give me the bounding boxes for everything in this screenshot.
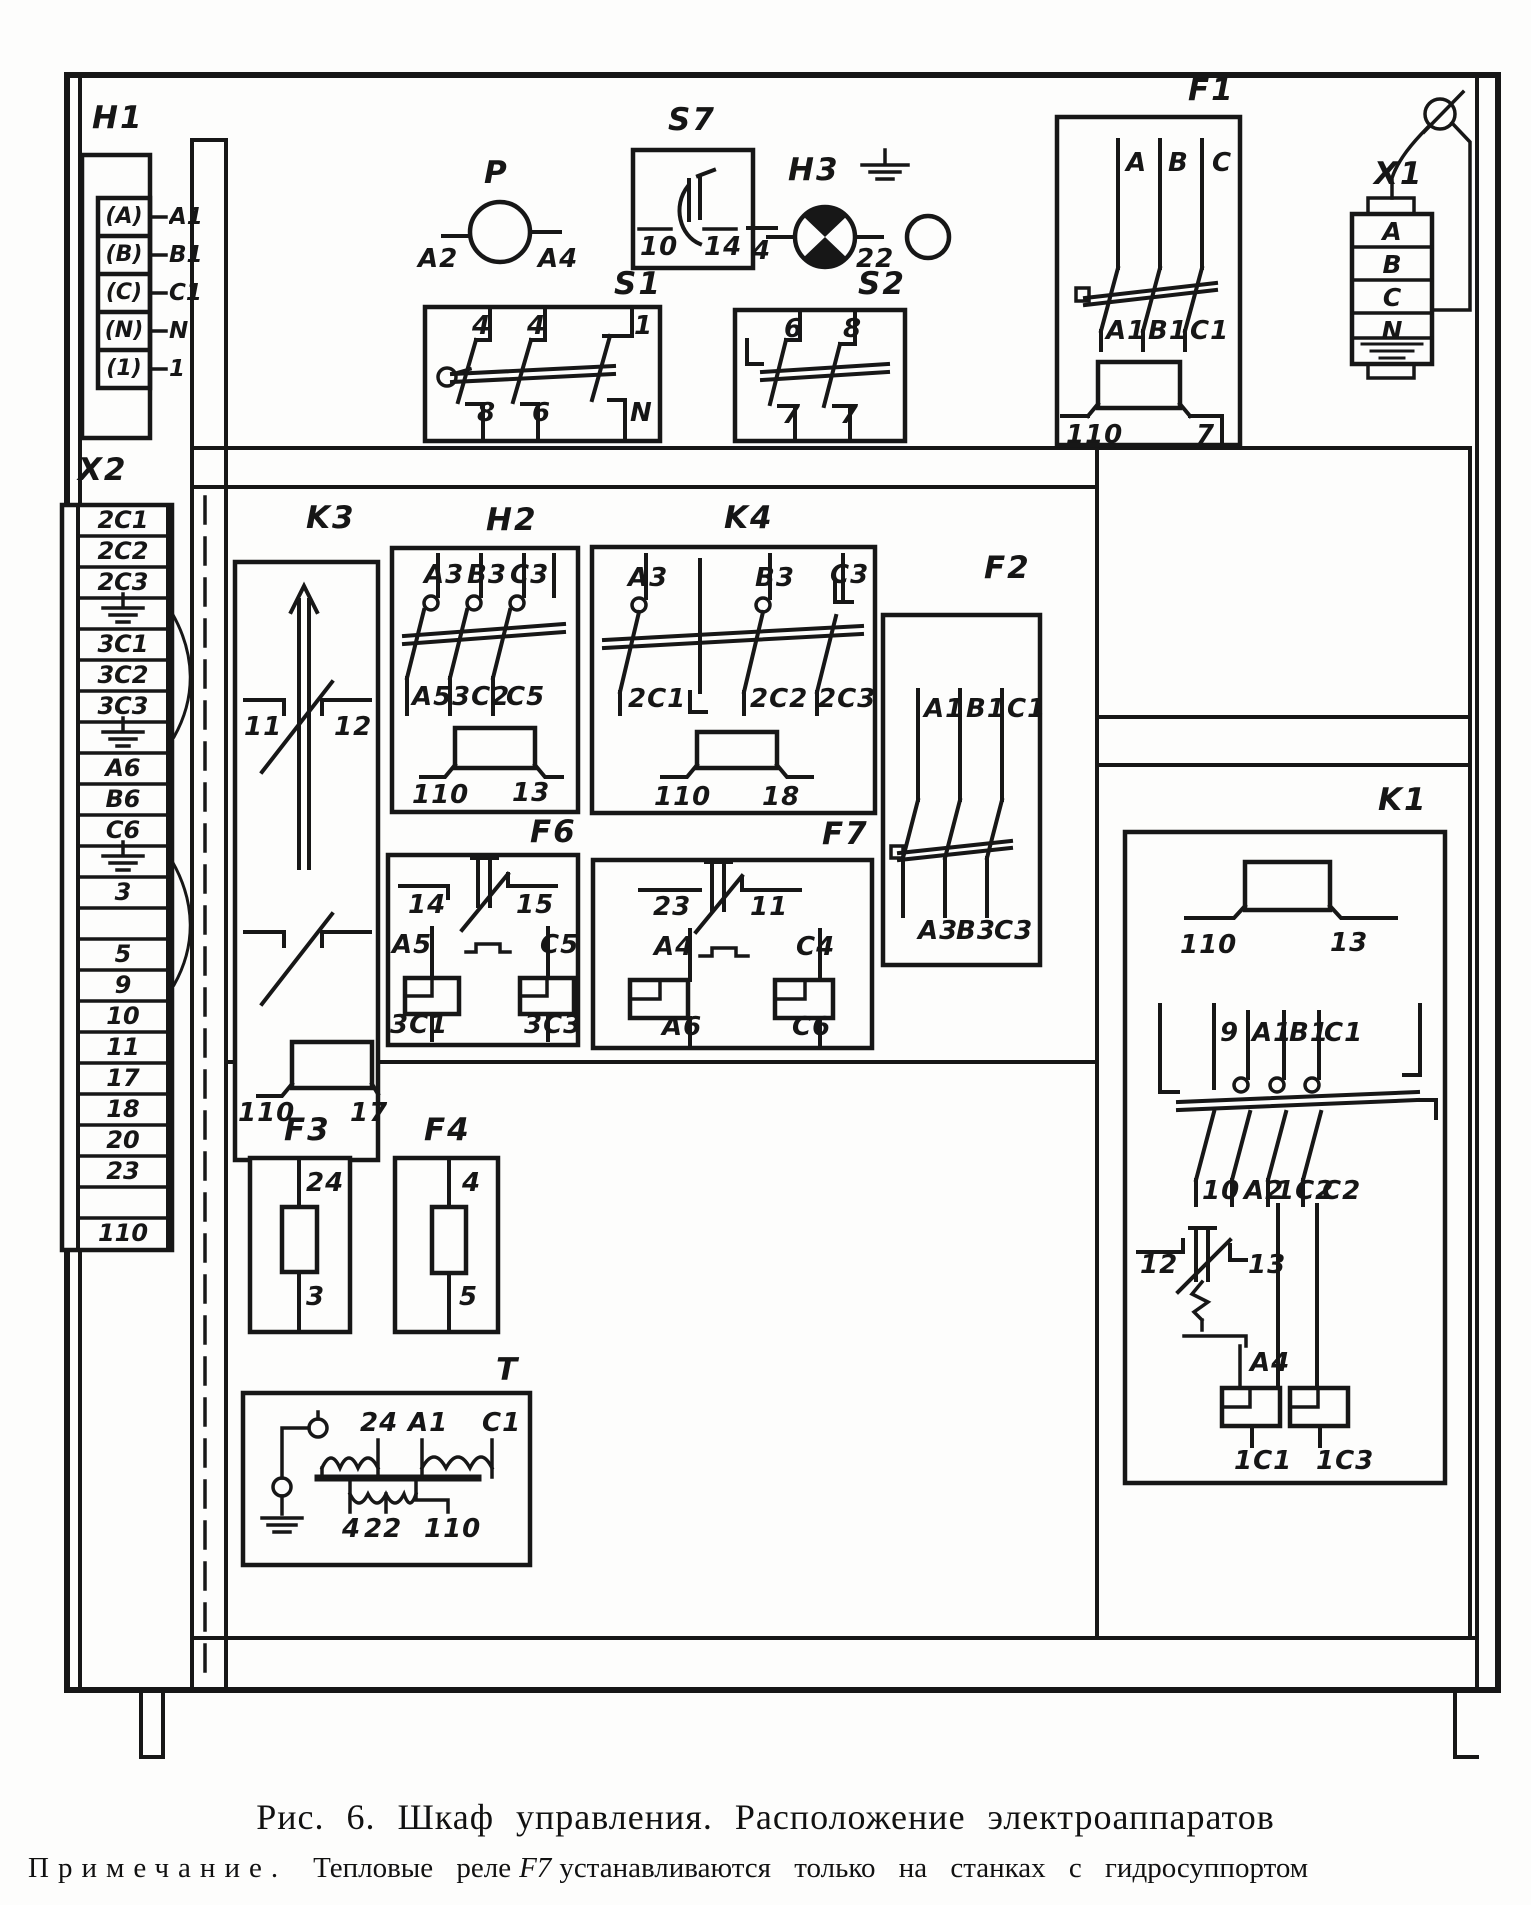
x1-cell: B [1352, 248, 1432, 281]
label-f1: F1 [1188, 72, 1235, 108]
pin-label: 17 [350, 1098, 388, 1128]
pin-label: 12 [1140, 1250, 1178, 1280]
pin-label: 24 [306, 1168, 344, 1198]
pin-label: 4 [472, 311, 491, 341]
note-emph: F7 [519, 1852, 551, 1884]
pin-label: C1 [1190, 316, 1229, 346]
label-s2: S2 [858, 266, 906, 302]
pin-label: 24 [360, 1408, 398, 1438]
pin-label: B1 [169, 236, 229, 274]
label-f3: F3 [284, 1112, 331, 1148]
pin-label: A5 [412, 682, 452, 712]
pin-label: 14 [704, 232, 742, 262]
pin-label: 9 [1220, 1018, 1239, 1048]
pin-label: C1 [169, 274, 229, 312]
pin-label: 12 [334, 712, 372, 742]
pin-label: B1 [1289, 1018, 1329, 1048]
pin-label: B3 [467, 560, 507, 590]
x2-rows: 2C1 2C2 2C3 3C1 3C2 3C3 A6 B6 C6 3 5 9 1… [78, 505, 168, 1249]
pin-label: C3 [994, 916, 1033, 946]
note-label: Примечание. [28, 1852, 287, 1884]
pin-label: 2C1 [628, 684, 686, 714]
terminal: 3C2 [78, 660, 168, 691]
pin-label: 3C1 [390, 1010, 448, 1040]
terminal: 23 [78, 1156, 168, 1187]
pin-label: 7 [782, 400, 801, 430]
label-h3: H3 [788, 152, 840, 188]
terminal: 9 [78, 970, 168, 1001]
pin-label: 1 [169, 350, 229, 388]
label-x2: X2 [78, 452, 127, 488]
pin-label: 6 [532, 398, 551, 428]
label-s1: S1 [614, 266, 662, 302]
pin-label: 3 [306, 1282, 325, 1312]
terminal: 3C1 [78, 629, 168, 660]
pin-label: B1 [966, 694, 1006, 724]
pin-label: 23 [653, 892, 691, 922]
pin-label: 5 [459, 1282, 478, 1312]
pin-label: A4 [538, 244, 578, 274]
pin-label: A3 [628, 563, 668, 593]
figure-caption: Рис. 6. Шкаф управления. Расположение эл… [0, 1796, 1531, 1838]
x1-cells: A B C N [1352, 215, 1432, 347]
terminal: 20 [78, 1125, 168, 1156]
pin-label: C6 [792, 1012, 831, 1042]
pin-label: 4 [527, 311, 546, 341]
pin-label: A5 [392, 930, 432, 960]
k1-contactor [1125, 832, 1445, 1483]
h1-cell: (C) [98, 274, 150, 312]
label-f6: F6 [530, 814, 577, 850]
pin-label: 14 [408, 890, 446, 920]
pin-label: A1 [1252, 1018, 1292, 1048]
pin-label: C5 [540, 930, 579, 960]
terminal [78, 846, 168, 877]
label-x1: X1 [1374, 156, 1423, 192]
terminal: 3C3 [78, 691, 168, 722]
pin-label: 1 [634, 311, 653, 341]
label-h2: H2 [486, 502, 538, 538]
pin-label: 11 [244, 712, 282, 742]
pin-label: 110 [654, 782, 711, 812]
label-f7: F7 [822, 816, 869, 852]
terminal: 2C1 [78, 505, 168, 536]
terminal: B6 [78, 784, 168, 815]
terminal: 17 [78, 1063, 168, 1094]
pin-label: C1 [1007, 694, 1046, 724]
pin-label: 10 [640, 232, 678, 262]
pin-label: 2C2 [750, 684, 808, 714]
terminal: 5 [78, 939, 168, 970]
pin-label: 3C2 [452, 682, 510, 712]
terminal [78, 1187, 168, 1218]
k3-relay [235, 562, 378, 1160]
pin-label: 2C3 [818, 684, 876, 714]
terminal: C6 [78, 815, 168, 846]
h1-pins: A1 B1 C1 N 1 [169, 198, 229, 388]
label-s7: S7 [668, 102, 716, 138]
pin-label: A1 [1106, 316, 1146, 346]
control-cabinet-figure: H1 (A) (B) (C) (N) (1) A1 B1 C1 N 1 X2 2… [0, 0, 1531, 1905]
pin-label: 10 [1202, 1176, 1240, 1206]
terminal [78, 598, 168, 629]
note-tail: устанавливаются только на станках с гидр… [559, 1852, 1308, 1884]
pin-label: A3 [424, 560, 464, 590]
lens-circle [907, 216, 949, 258]
pin-label: 11 [750, 892, 788, 922]
pin-label: N [630, 398, 653, 428]
pin-label: B3 [956, 916, 996, 946]
pin-label: A2 [418, 244, 458, 274]
pin-label: C5 [506, 682, 545, 712]
pin-label: C [1212, 148, 1232, 178]
pin-label: A1 [169, 198, 229, 236]
pin-label: 7 [1196, 420, 1215, 450]
label-f4: F4 [424, 1112, 471, 1148]
label-f2: F2 [984, 550, 1031, 586]
pin-label: 6 [784, 314, 803, 344]
h1-cell: (N) [98, 312, 150, 350]
terminal: 10 [78, 1001, 168, 1032]
pin-label: 15 [516, 890, 554, 920]
x1-cell: A [1352, 215, 1432, 248]
pin-label: C3 [830, 560, 869, 590]
pin-label: B1 [1148, 316, 1188, 346]
pin-label: 110 [424, 1514, 481, 1544]
pin-label: B3 [755, 563, 795, 593]
terminal [78, 722, 168, 753]
pin-label: 110 [1066, 420, 1123, 450]
pin-label: 3C3 [524, 1010, 582, 1040]
terminal: 2C3 [78, 567, 168, 598]
label-p: P [484, 155, 509, 191]
pin-label: 8 [843, 314, 862, 344]
terminal: 110 [78, 1218, 168, 1249]
pin-label: 13 [1330, 928, 1368, 958]
pin-label: N [169, 312, 229, 350]
diagram-linework [0, 0, 1531, 1905]
pin-label: 1C3 [1316, 1446, 1374, 1476]
pin-label: A6 [662, 1012, 702, 1042]
h1-cells: (A) (B) (C) (N) (1) [98, 198, 150, 388]
x1-cell: N [1352, 314, 1432, 347]
pin-label: 7 [840, 400, 859, 430]
label-k3: K3 [306, 500, 356, 536]
pin-label: A1 [924, 694, 964, 724]
pin-label: 4 [752, 236, 771, 266]
label-h1: H1 [92, 100, 144, 136]
pin-label: 22 [364, 1514, 402, 1544]
f2-thermal-relay [883, 615, 1040, 965]
pin-label: C1 [482, 1408, 521, 1438]
pin-label: C4 [796, 932, 835, 962]
note-body: Тепловые реле [313, 1852, 511, 1884]
figure-note: Примечание.Тепловые релеF7устанавливаютс… [28, 1852, 1506, 1885]
pin-label: 4 [342, 1514, 361, 1544]
pin-label: B [1168, 148, 1189, 178]
h3-lamp [748, 150, 949, 268]
terminal: 2C2 [78, 536, 168, 567]
pin-label: A [1126, 148, 1147, 178]
terminal: 3 [78, 877, 168, 908]
pin-label: 13 [1248, 1250, 1286, 1280]
h1-cell: (1) [98, 350, 150, 388]
pin-label: 4 [462, 1168, 481, 1198]
terminal: 18 [78, 1094, 168, 1125]
f4-fuse [395, 1158, 498, 1332]
pin-label: 1C1 [1234, 1446, 1292, 1476]
pin-label: A1 [408, 1408, 448, 1438]
pin-label: 110 [1180, 930, 1237, 960]
x1-cell: C [1352, 281, 1432, 314]
pin-label: 110 [412, 780, 469, 810]
h1-cell: (B) [98, 236, 150, 274]
label-t: T [496, 1352, 519, 1388]
h1-cell: (A) [98, 198, 150, 236]
terminal: A6 [78, 753, 168, 784]
pin-label: 8 [477, 398, 496, 428]
terminal: 11 [78, 1032, 168, 1063]
pin-label: A4 [1250, 1348, 1290, 1378]
pin-label: 13 [512, 778, 550, 808]
terminal [78, 908, 168, 939]
pin-label: C3 [510, 560, 549, 590]
pin-label: C2 [1322, 1176, 1361, 1206]
pin-label: 18 [762, 782, 800, 812]
pin-label: C1 [1324, 1018, 1363, 1048]
label-k1: K1 [1378, 782, 1428, 818]
label-k4: K4 [724, 500, 774, 536]
pin-label: A3 [918, 916, 958, 946]
s2-switch [735, 310, 905, 441]
pin-label: A4 [654, 932, 694, 962]
